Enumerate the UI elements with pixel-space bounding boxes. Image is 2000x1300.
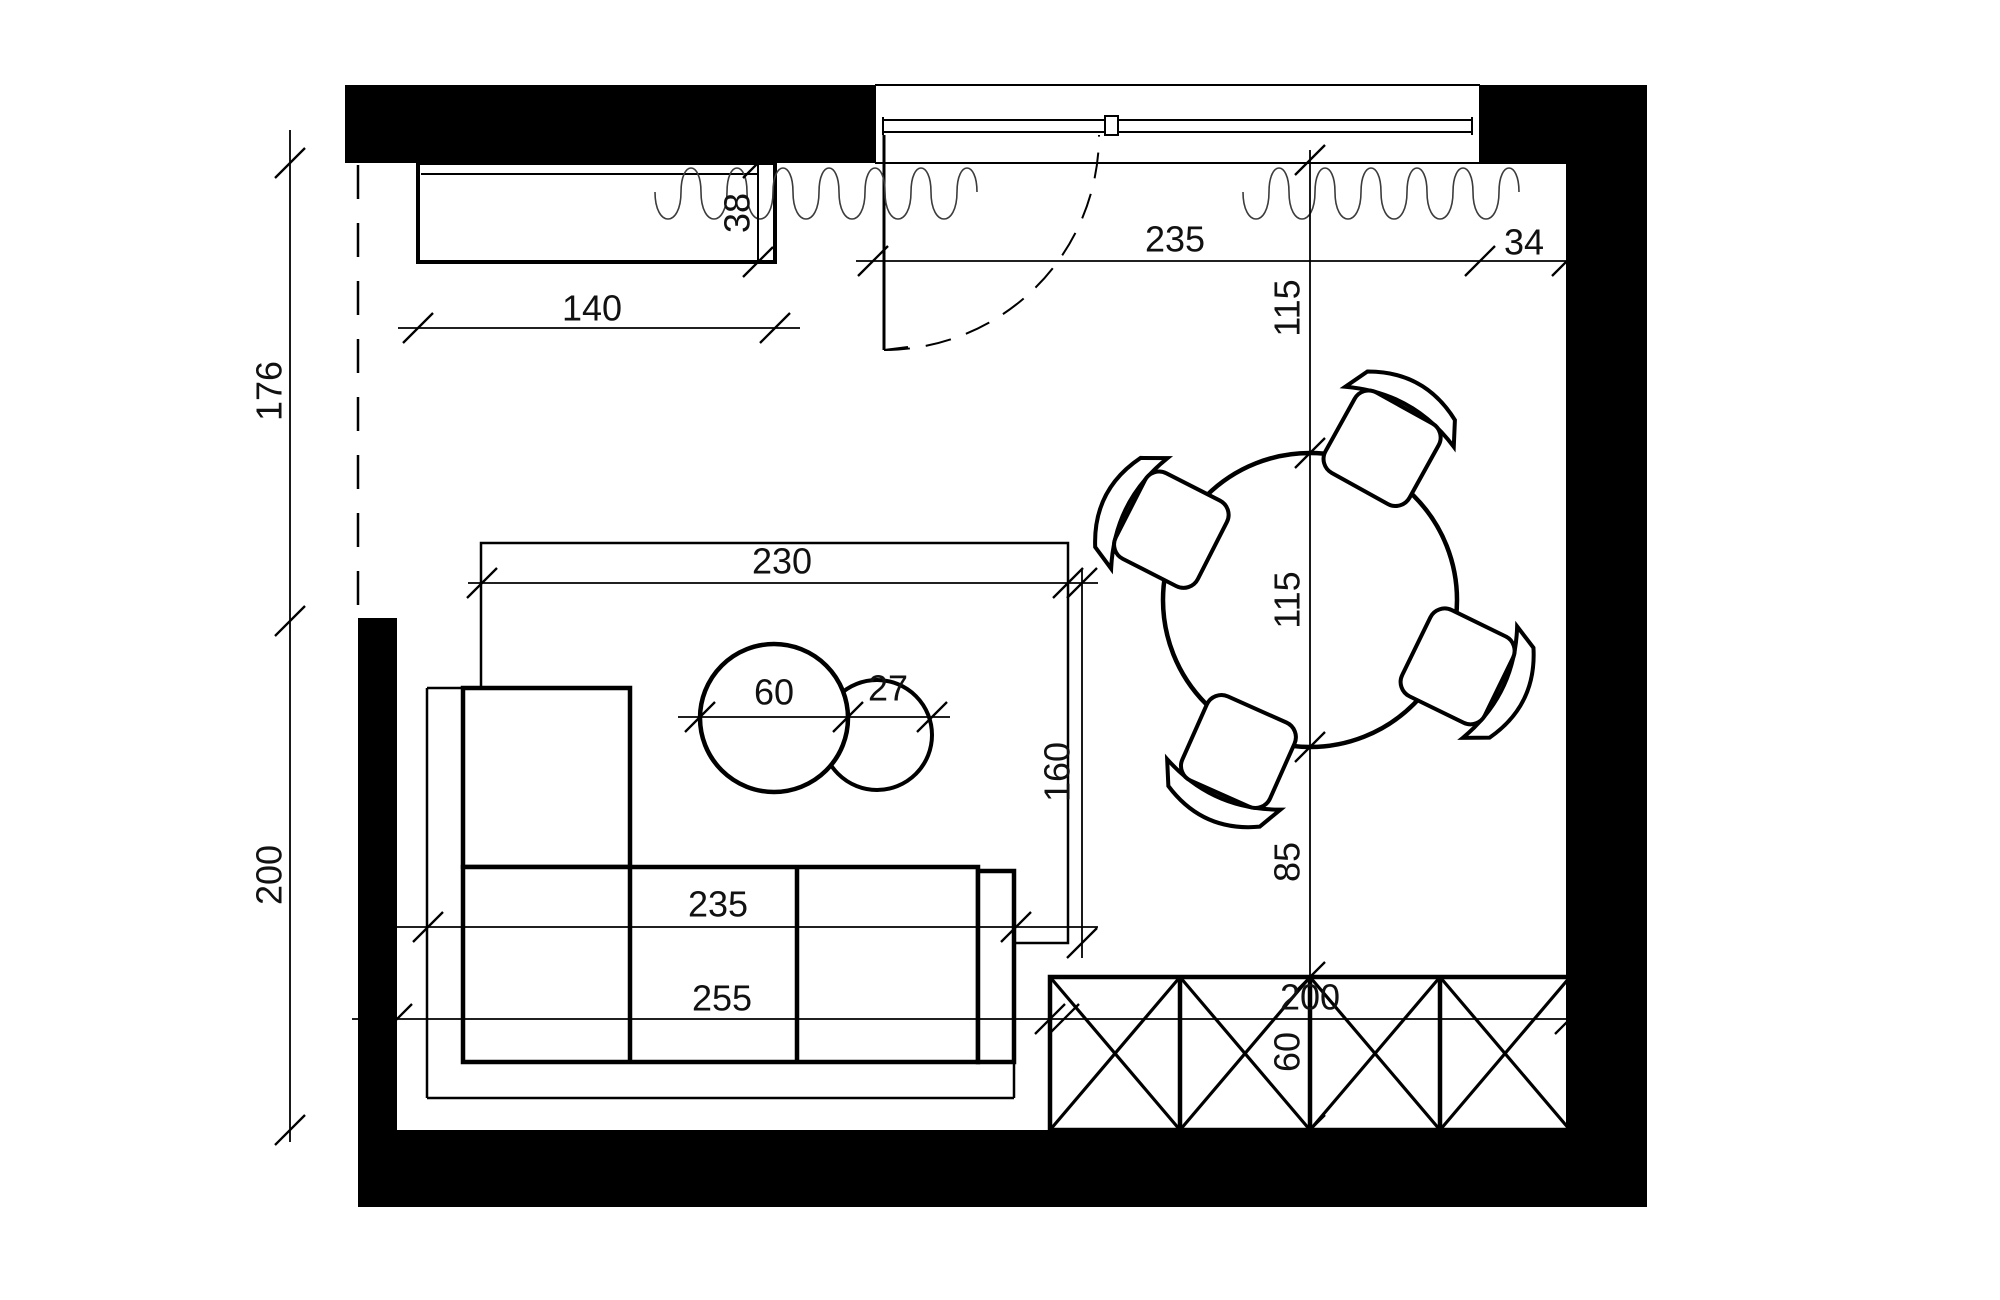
dimension-label: 176	[249, 361, 290, 421]
curtain-squiggle	[1243, 168, 1519, 219]
wall-bottom	[358, 1130, 1647, 1207]
dimension-label: 115	[1267, 571, 1308, 628]
floor-plan-drawing: 1762001403823534115115856020023016060272…	[0, 0, 2000, 1300]
window-mullion	[1105, 116, 1118, 135]
dining-layer	[1077, 353, 1551, 844]
wall-right	[1566, 163, 1647, 1207]
dimension-label: 34	[1504, 222, 1544, 263]
dimension-label: 230	[752, 541, 812, 582]
dimension-label: 140	[562, 288, 622, 329]
sofa-armrest	[978, 871, 1014, 1062]
door-swing-arc	[884, 135, 1099, 350]
dimension-label: 60	[1267, 1032, 1308, 1072]
floor-plan-page: 1762001403823534115115856020023016060272…	[0, 0, 2000, 1300]
dimension-label: 255	[692, 978, 752, 1019]
dimension-label: 115	[1267, 279, 1308, 336]
window-layer	[875, 85, 1566, 163]
dimension-label: 200	[1280, 977, 1340, 1018]
dimension-label: 27	[868, 668, 908, 709]
curtain-layer	[655, 168, 1519, 219]
dimension-label: 200	[249, 845, 290, 905]
coffee-table-large	[700, 644, 848, 792]
wall-top-right	[1480, 85, 1647, 163]
dimension-label: 235	[688, 884, 748, 925]
wall-top-left	[345, 85, 875, 163]
dimension-label: 60	[754, 672, 794, 713]
dimension-label: 85	[1267, 842, 1308, 882]
sofa-chaise	[463, 688, 630, 867]
dimension-label: 235	[1145, 219, 1205, 260]
dimension-label: 160	[1037, 742, 1078, 802]
wall-left-lower	[358, 618, 397, 1130]
dimension-label: 38	[717, 193, 758, 233]
door-layer	[884, 135, 1099, 350]
